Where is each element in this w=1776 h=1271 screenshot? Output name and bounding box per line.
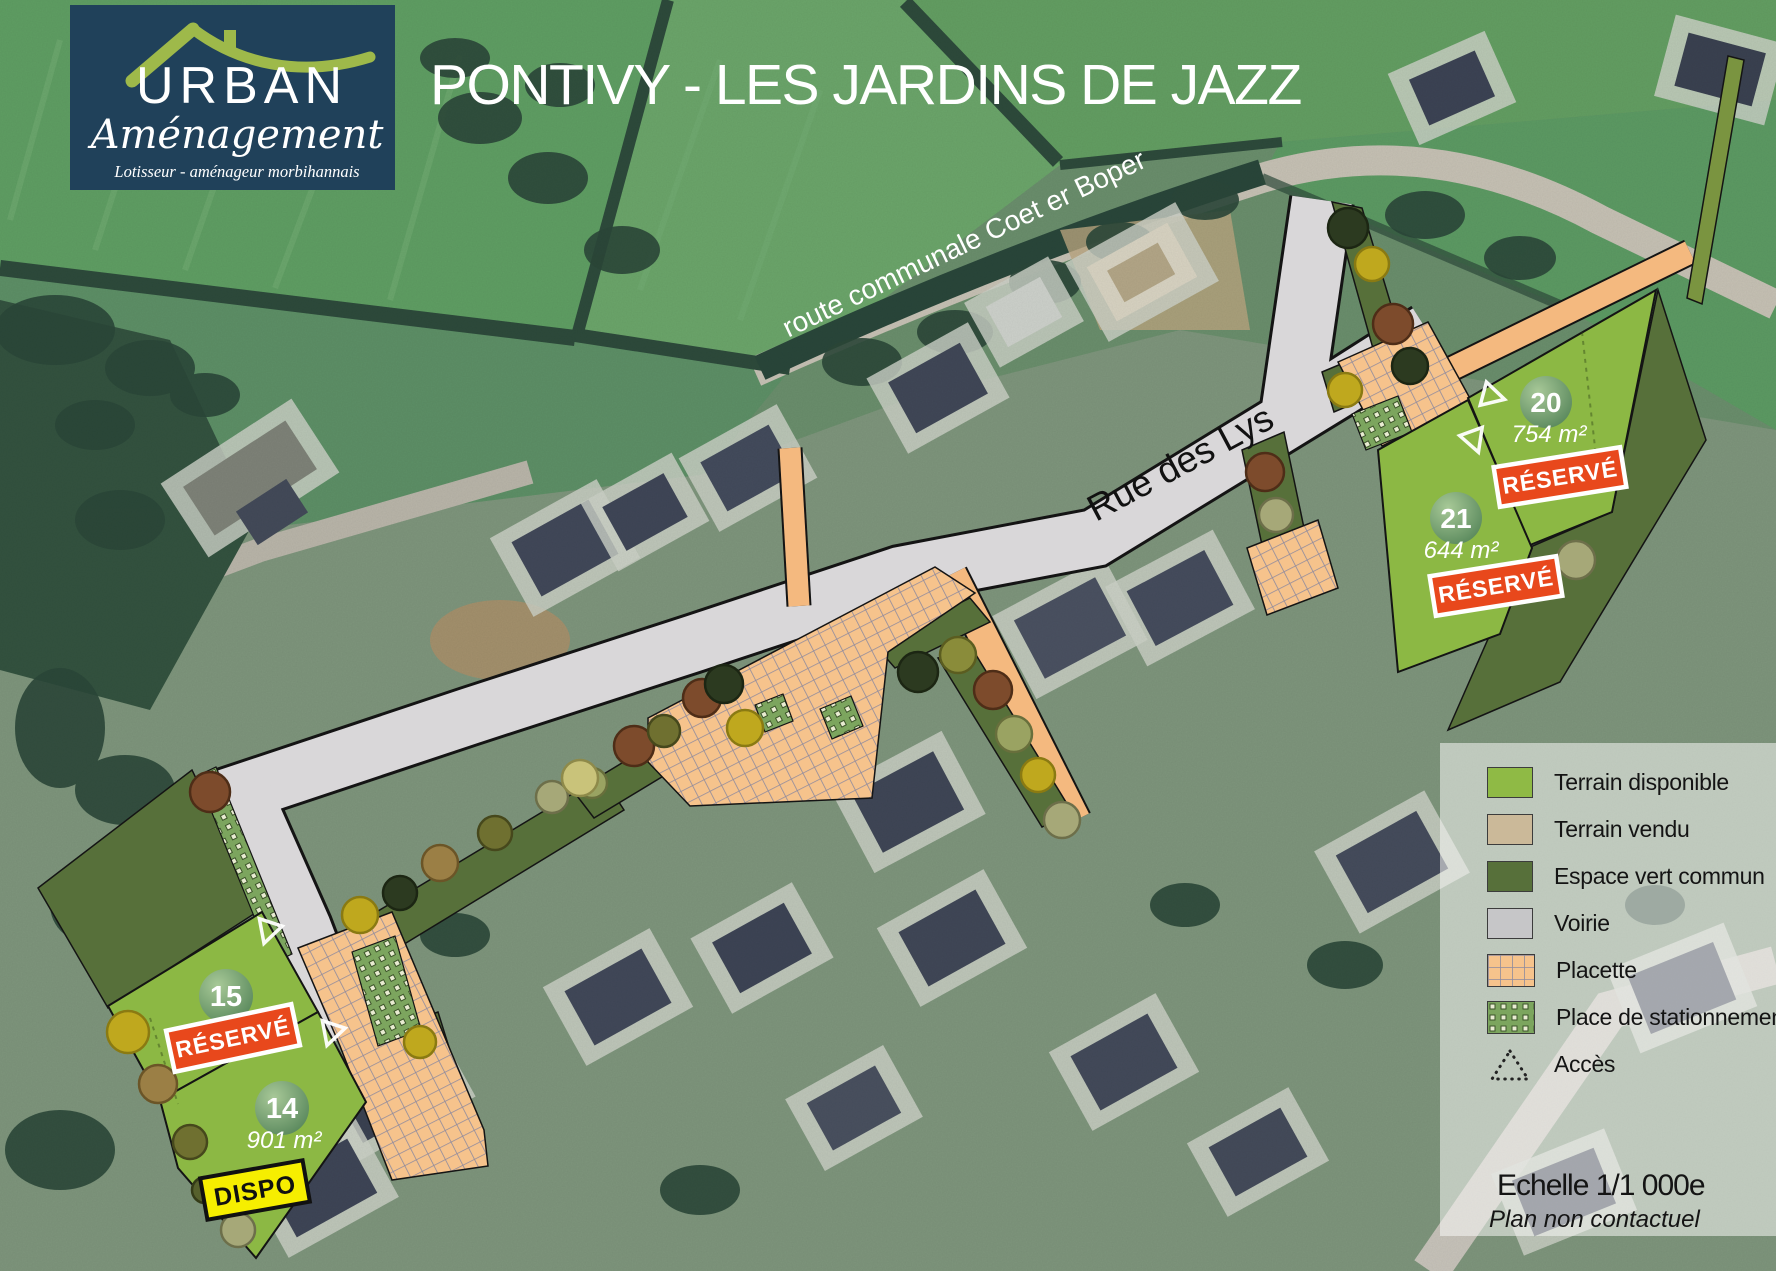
legend-swatch-placette <box>1487 954 1535 987</box>
legend-label: Accès <box>1554 1051 1615 1078</box>
tree-icon <box>190 772 230 812</box>
logo-tagline: Lotisseur - aménageur morbihannais <box>113 162 359 181</box>
legend-item: Terrain vendu <box>1487 806 1776 853</box>
tree-icon <box>383 876 417 910</box>
tree-icon <box>727 710 763 746</box>
access-triangle-icon <box>1492 1051 1528 1079</box>
tree-icon <box>1246 453 1284 491</box>
tree-icon <box>974 671 1012 709</box>
scale-text: Echelle 1/1 000e <box>1497 1169 1705 1203</box>
tree-icon <box>1259 498 1293 532</box>
legend-item: Espace vert commun <box>1487 853 1776 900</box>
legend-label: Placette <box>1556 957 1637 984</box>
legend-swatch-acces <box>1487 1045 1533 1085</box>
tree-icon <box>404 1026 436 1058</box>
tree-icon <box>705 665 743 703</box>
tree-icon <box>173 1125 207 1159</box>
legend-item: Voirie <box>1487 900 1776 947</box>
tree-icon <box>1373 304 1413 344</box>
plot-number: 20 <box>1530 387 1561 418</box>
logo-brand-text: URBAN <box>136 57 348 115</box>
plot-area: 754 m² <box>1512 421 1588 448</box>
legend-label: Voirie <box>1554 910 1610 937</box>
legend-item: Accès <box>1487 1041 1776 1088</box>
tree-icon <box>1044 802 1080 838</box>
tree-icon <box>1328 373 1362 407</box>
legend-swatch-terrain-disponible <box>1487 767 1533 798</box>
page-title: PONTIVY - LES JARDINS DE JAZZ <box>430 52 1301 118</box>
tree-icon <box>996 716 1032 752</box>
logo-brand: URBAN <box>136 57 348 115</box>
tree-icon <box>562 760 598 796</box>
legend-label: Terrain disponible <box>1554 769 1729 796</box>
tree-icon <box>1328 208 1368 248</box>
tree-icon <box>1355 247 1389 281</box>
tree-icon <box>342 897 378 933</box>
tree-icon <box>940 637 976 673</box>
disclaimer-text: Plan non contactuel <box>1489 1206 1700 1234</box>
legend-label: Terrain vendu <box>1554 816 1689 843</box>
legend-item: Terrain disponible <box>1487 759 1776 806</box>
legend-swatch-voirie <box>1487 908 1533 939</box>
plot-number: 14 <box>266 1093 298 1125</box>
plot-area: 644 m² <box>1424 537 1500 564</box>
tree-icon <box>1557 541 1595 579</box>
legend-swatch-terrain-vendu <box>1487 814 1533 845</box>
tree-icon <box>898 652 938 692</box>
plot-area: 901 m² <box>247 1127 323 1154</box>
legend-item: Place de stationnement <box>1487 994 1776 1041</box>
company-logo: URBAN Aménagement Lotisseur - aménageur … <box>70 5 395 190</box>
map-legend: Terrain disponible Terrain vendu Espace … <box>1440 743 1776 1236</box>
legend-label: Place de stationnement <box>1556 1004 1776 1031</box>
tree-icon <box>139 1065 177 1103</box>
tree-icon <box>1021 758 1055 792</box>
legend-label: Espace vert commun <box>1554 863 1765 890</box>
tree-icon <box>422 845 458 881</box>
logo-script: Aménagement <box>87 112 385 158</box>
plot-number: 21 <box>1440 503 1471 534</box>
legend-swatch-stationnement <box>1487 1001 1535 1034</box>
site-plan-page: route communale Coet er Boper Rue des Ly… <box>0 0 1776 1271</box>
legend-item: Placette <box>1487 947 1776 994</box>
tree-icon <box>648 715 680 747</box>
tree-icon <box>107 1011 149 1053</box>
tree-icon <box>478 816 512 850</box>
tree-icon <box>1392 348 1428 384</box>
legend-swatch-espace-vert <box>1487 861 1533 892</box>
plot-number: 15 <box>210 981 242 1013</box>
